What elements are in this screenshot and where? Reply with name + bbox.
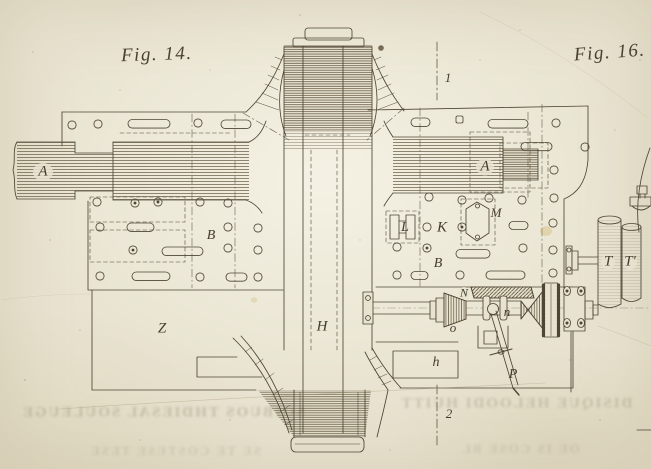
- drum-h: [233, 28, 404, 452]
- engraving-svg: [0, 0, 651, 469]
- shaft-a-left: [13, 121, 266, 213]
- frame-right-plate: [367, 104, 589, 287]
- fig16-fragment: [630, 148, 651, 232]
- scanned-plate-page: SOIBUOS THDIESAL SOULEUGEDISIQUE HELOODI…: [0, 0, 651, 469]
- shaft-a-right: [384, 121, 538, 206]
- fig14-label: Fig. 14.: [121, 43, 193, 67]
